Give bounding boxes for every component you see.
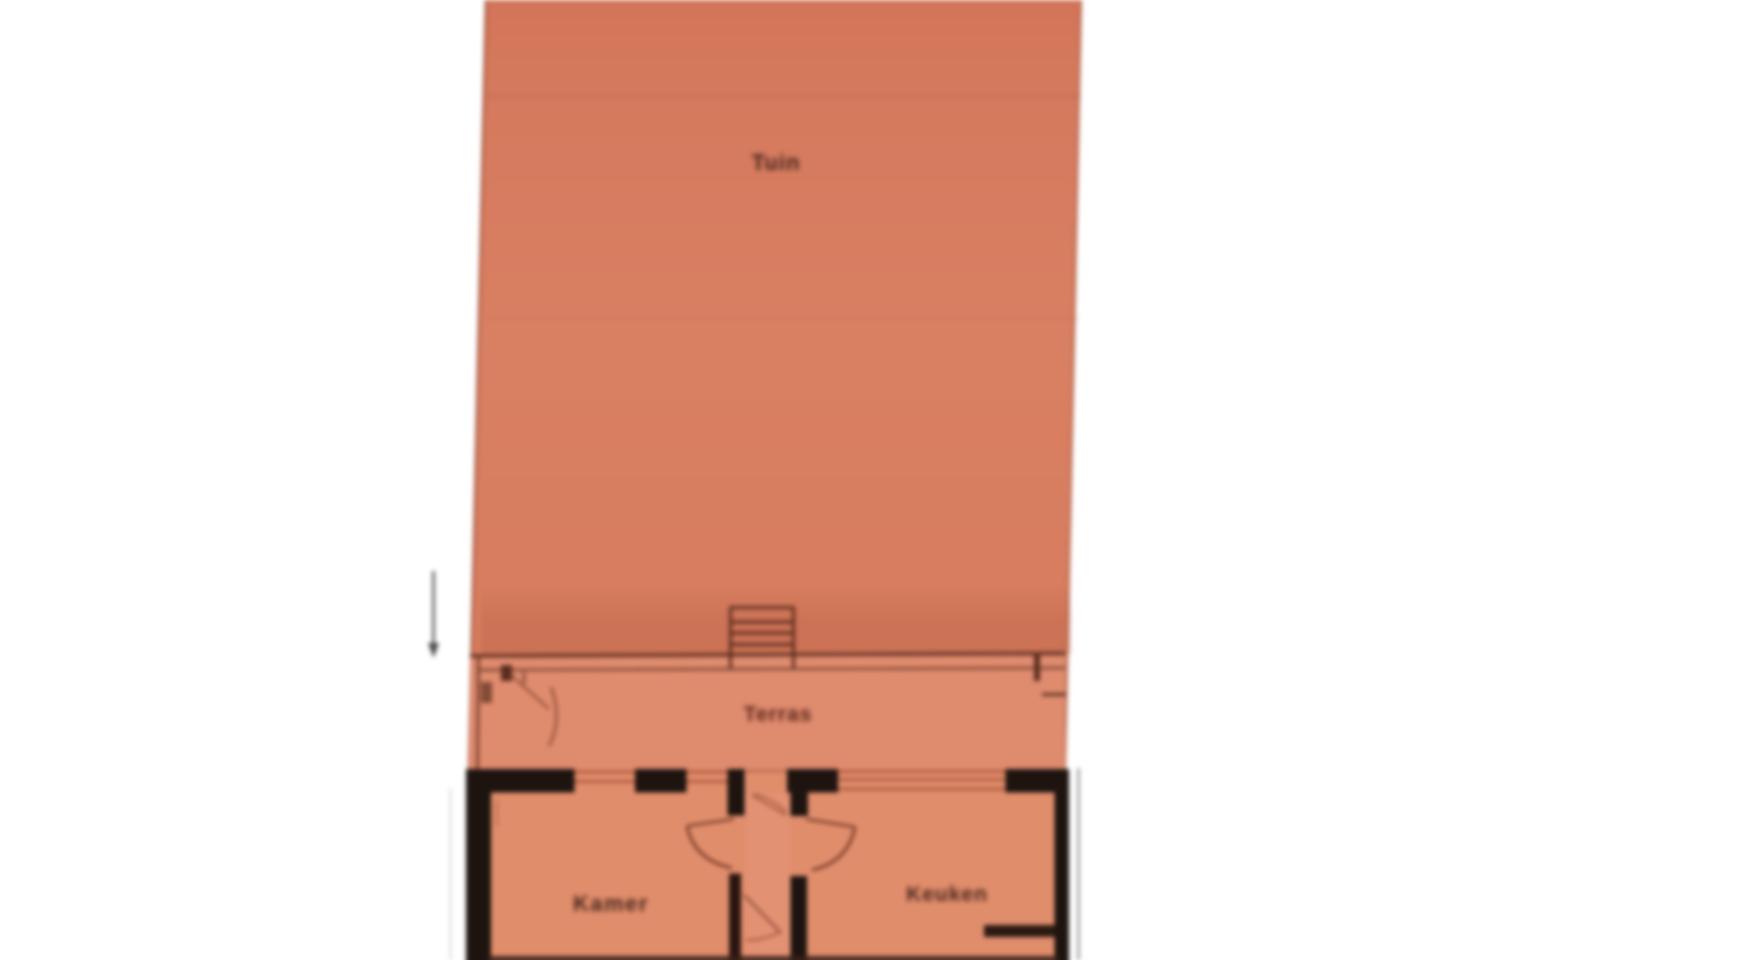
svg-text:Tuin: Tuin [752,150,801,175]
svg-text:Terras: Terras [744,703,813,726]
svg-text:Keuken: Keuken [906,883,988,906]
svg-text:Kamer: Kamer [573,891,649,916]
